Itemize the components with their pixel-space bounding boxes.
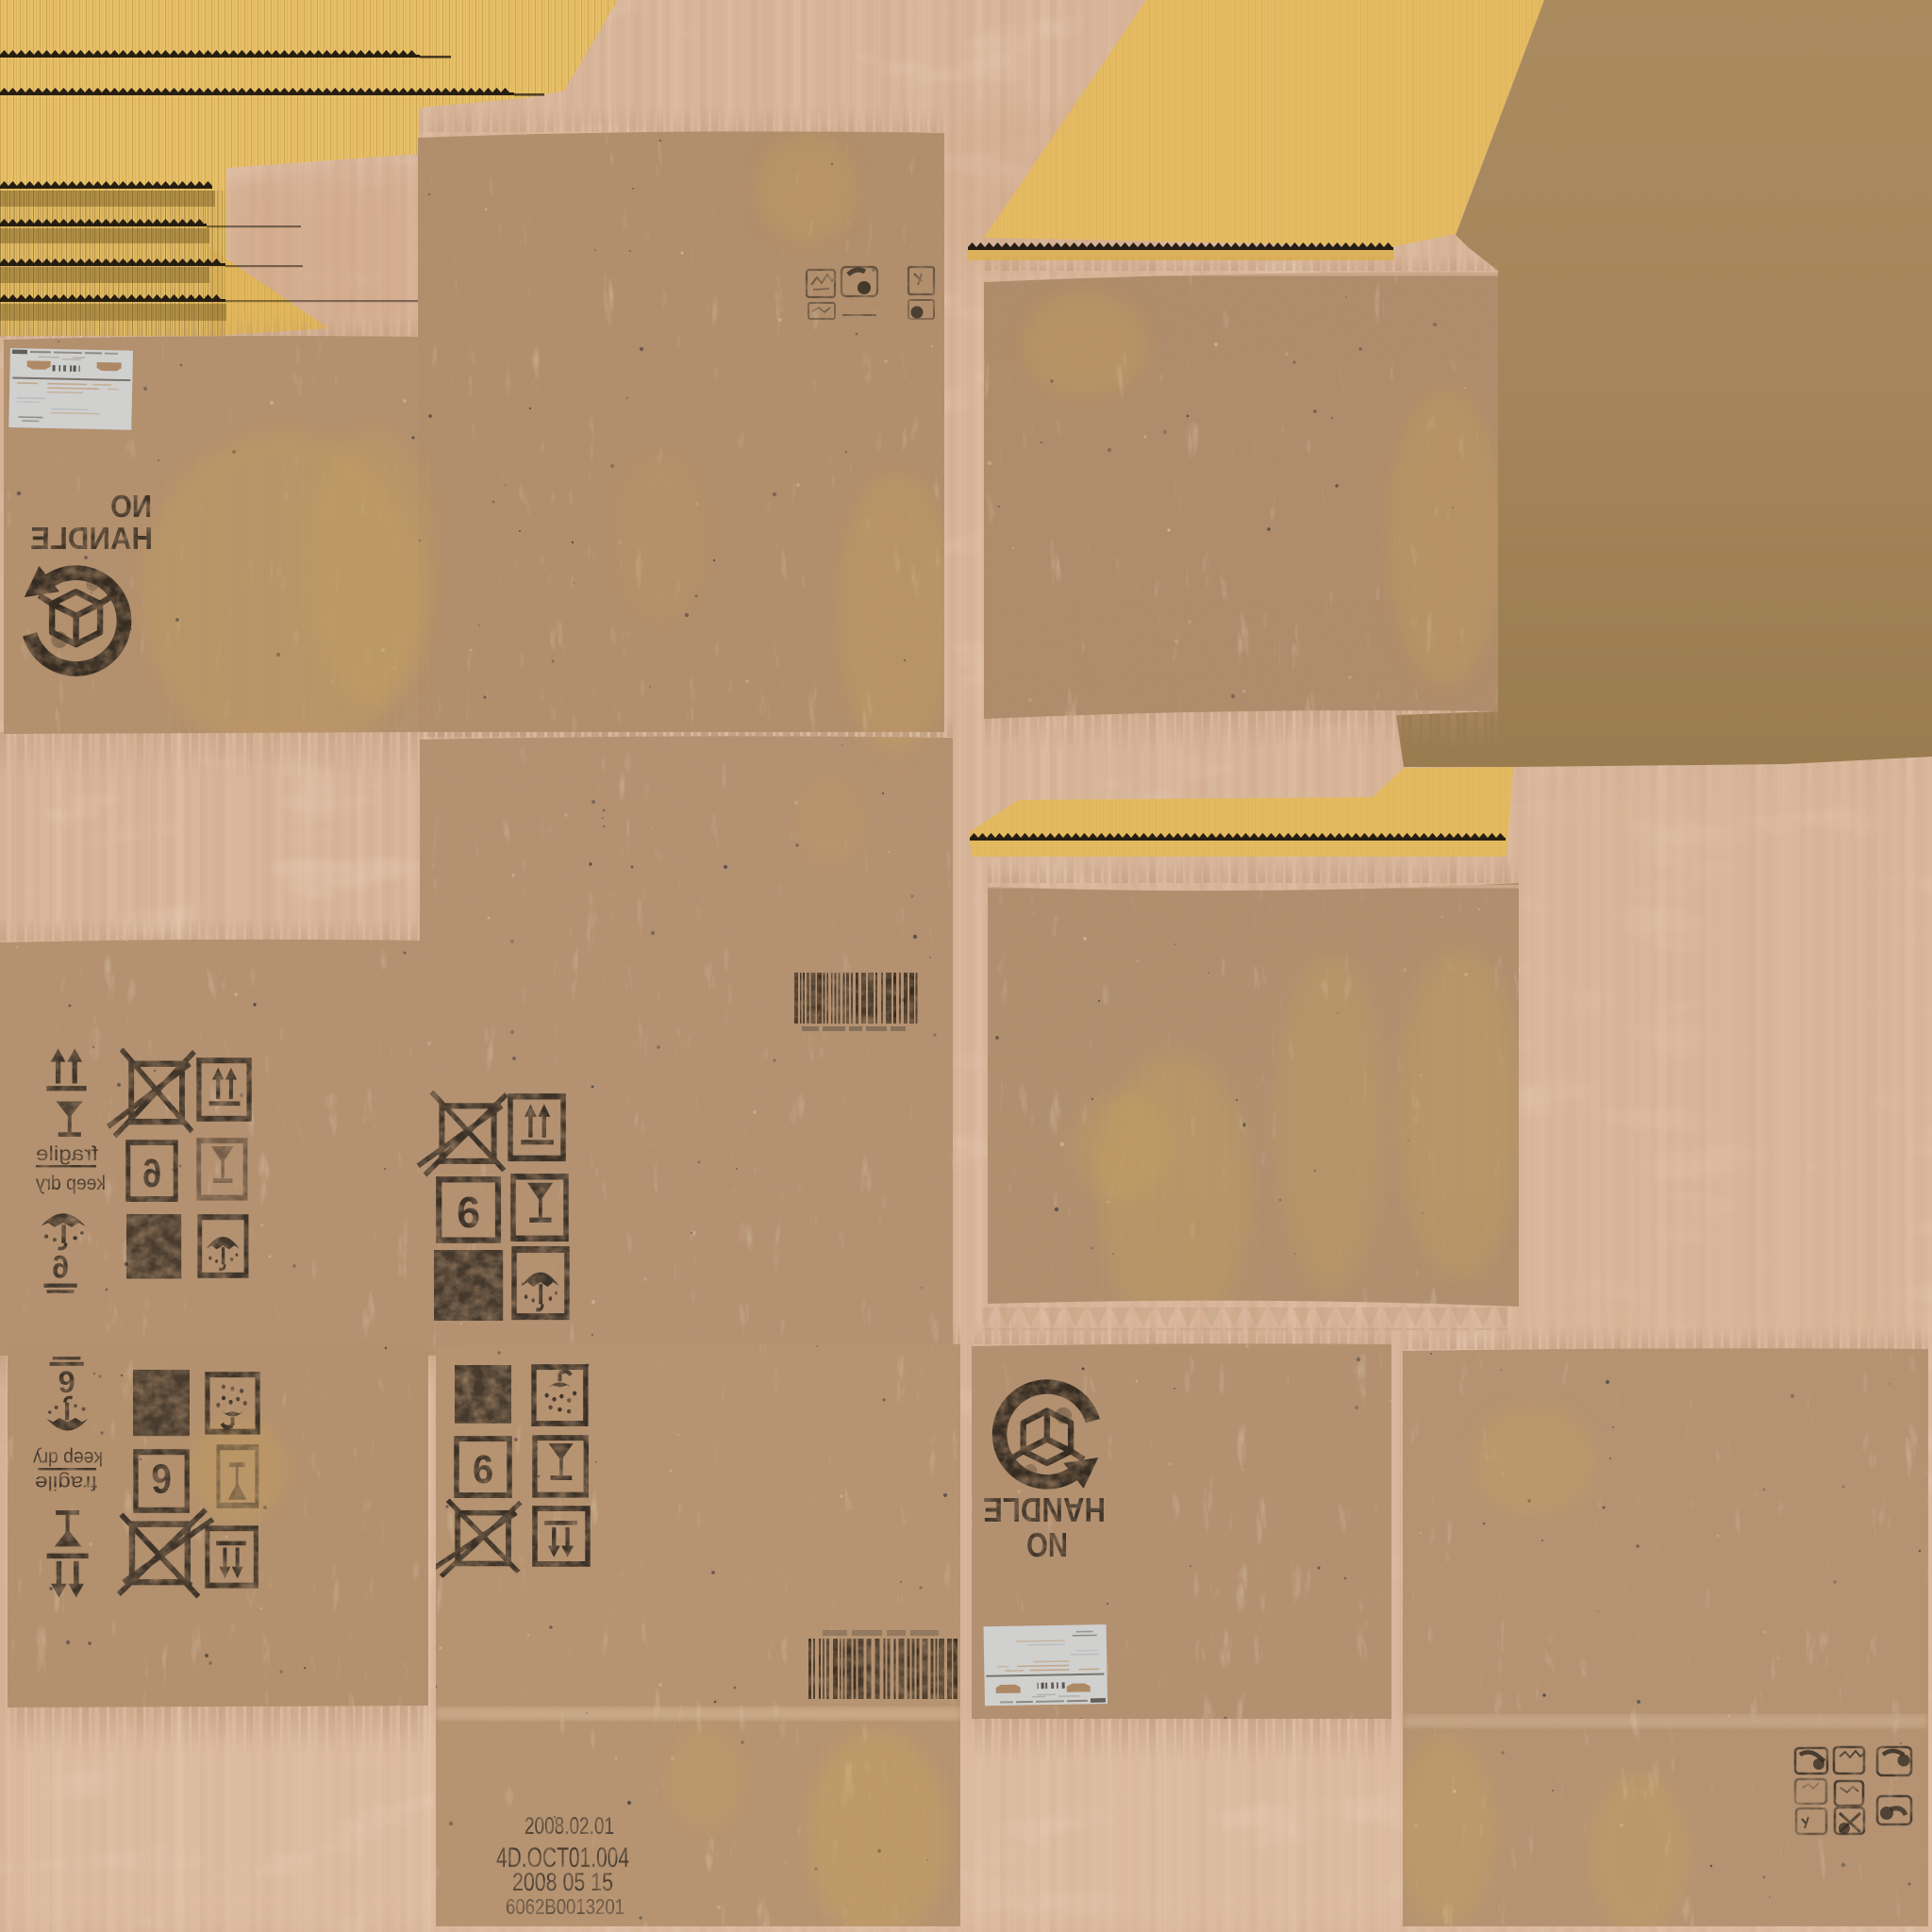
svg-text:2008.02.01: 2008.02.01 <box>525 1813 614 1840</box>
svg-text:fragile: fragile <box>36 1143 98 1165</box>
svg-text:6062B0013201: 6062B0013201 <box>506 1894 625 1919</box>
svg-text:NO: NO <box>1026 1525 1068 1564</box>
svg-text:keep dry: keep dry <box>36 1173 106 1194</box>
svg-text:2008 05 15: 2008 05 15 <box>512 1868 613 1896</box>
svg-text:NO: NO <box>110 489 152 524</box>
svg-text:fragile: fragile <box>35 1472 97 1493</box>
svg-text:HANDLE: HANDLE <box>30 521 153 556</box>
svg-text:keep dry: keep dry <box>33 1447 103 1469</box>
svg-text:HANDLE: HANDLE <box>983 1491 1106 1529</box>
